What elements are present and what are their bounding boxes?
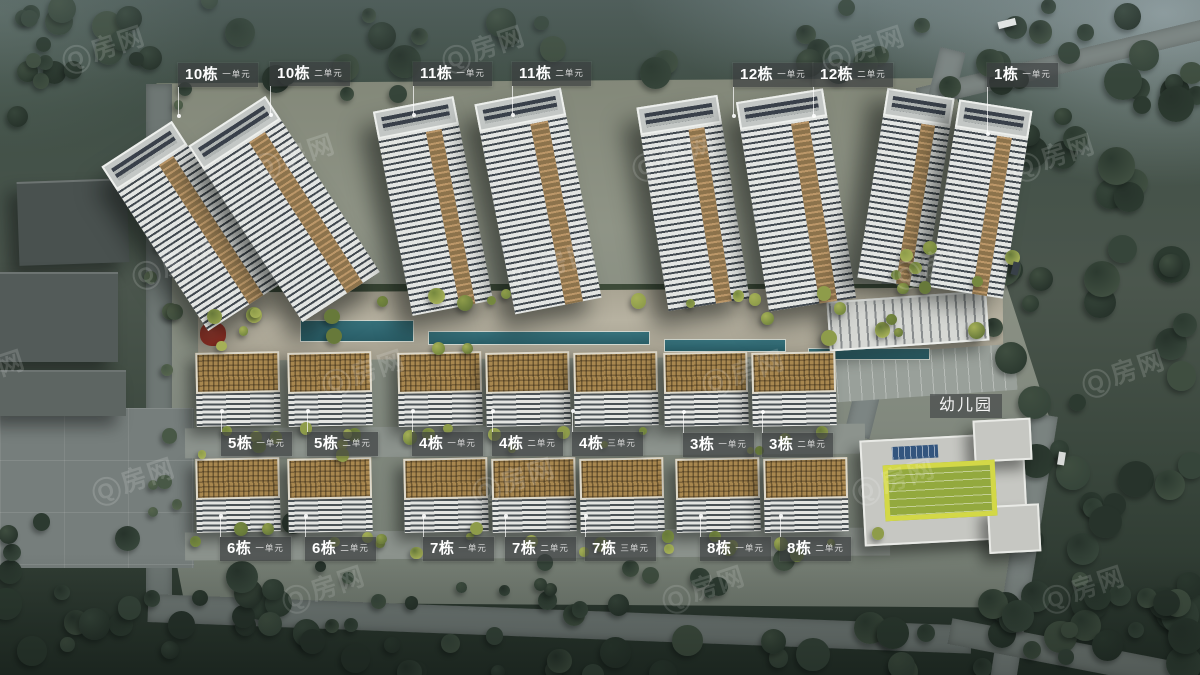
unit-label: 三单元	[607, 439, 636, 448]
tree	[1108, 235, 1136, 263]
tree	[1089, 506, 1122, 539]
tree	[499, 585, 510, 596]
tree	[161, 641, 179, 659]
tree	[111, 29, 133, 51]
building-label: 11栋一单元	[413, 62, 492, 86]
forest-trees-layer	[0, 0, 1200, 675]
midrise-facade	[664, 392, 749, 427]
tree	[1118, 461, 1154, 497]
building-number: 4栋	[579, 436, 603, 451]
building-label: 4栋二单元	[492, 432, 563, 456]
label-leader-line	[413, 86, 414, 114]
tree	[582, 664, 604, 675]
building-number: 3栋	[769, 437, 793, 452]
tree	[888, 652, 916, 675]
tree	[129, 52, 143, 66]
residential-complex-aerial-render: 10栋一单元10栋二单元11栋一单元11栋二单元12栋一单元12栋二单元1栋一单…	[0, 0, 1200, 675]
kindergarten-playground	[883, 460, 998, 522]
building-label: 12栋一单元	[733, 63, 813, 87]
label-leader-line	[412, 412, 413, 432]
label-leader-line	[492, 412, 493, 432]
building-number: 12栋	[820, 67, 853, 82]
tree	[341, 644, 370, 673]
midrise-building-block	[287, 351, 373, 427]
tree	[1022, 295, 1039, 312]
midrise-pergola-roof	[403, 457, 488, 499]
building-number: 10栋	[185, 67, 218, 82]
tree	[167, 304, 183, 320]
tree	[36, 37, 51, 52]
tree	[192, 590, 208, 606]
label-leader-line	[178, 87, 179, 115]
tree	[0, 560, 22, 584]
tree	[1069, 394, 1086, 411]
midrise-building-block	[195, 457, 281, 533]
label-leader-line	[585, 517, 586, 537]
midrise-building-block	[663, 351, 749, 427]
midrise-building-block	[751, 351, 837, 427]
label-leader-line	[423, 517, 424, 537]
midrise-pergola-roof	[195, 351, 280, 393]
tree	[1029, 20, 1052, 43]
building-label: 10栋一单元	[178, 63, 258, 87]
tower-facade-accent	[688, 127, 732, 303]
tree	[1128, 622, 1145, 639]
tree	[3, 544, 20, 561]
building-label: 7栋三单元	[585, 537, 656, 561]
unit-label: 一单元	[735, 544, 764, 553]
unit-label: 一单元	[447, 439, 476, 448]
tree	[0, 525, 18, 544]
unit-label: 一单元	[1022, 70, 1051, 79]
tree	[405, 596, 418, 609]
kindergarten-label: 幼儿园	[930, 394, 1002, 418]
tree	[1168, 618, 1200, 654]
tower-roof-solar-panels	[483, 96, 558, 124]
unit-label: 一单元	[456, 69, 485, 78]
tree	[161, 364, 173, 376]
tree	[877, 617, 909, 649]
tree	[168, 611, 196, 639]
building-number: 7栋	[512, 541, 536, 556]
label-leader-line	[270, 86, 271, 114]
tree	[642, 567, 659, 584]
label-leader-line	[572, 412, 573, 432]
label-leader-line	[305, 517, 306, 537]
unit-label: 一单元	[458, 544, 487, 553]
building-label: 1栋一单元	[987, 63, 1058, 87]
tree	[1058, 42, 1080, 64]
midrise-pergola-roof	[397, 351, 482, 393]
tree	[914, 18, 929, 33]
tree	[389, 85, 408, 104]
tower-facade-accent	[791, 121, 837, 304]
tree	[622, 560, 639, 577]
building-number: 6栋	[312, 541, 336, 556]
tower-facade-accent	[972, 136, 1012, 296]
building-label: 10栋二单元	[270, 62, 350, 86]
midrise-facade	[764, 498, 849, 533]
tree	[1109, 584, 1130, 605]
midrise-facade	[574, 392, 659, 427]
midrise-building-block	[403, 457, 489, 533]
tree	[1133, 96, 1151, 114]
midrise-pergola-roof	[195, 457, 280, 499]
label-leader-line	[683, 413, 684, 433]
tree	[315, 561, 326, 572]
unit-label: 一单元	[718, 440, 747, 449]
tree	[79, 608, 110, 639]
tree	[368, 22, 396, 50]
midrise-facade	[196, 498, 281, 533]
tree	[33, 73, 49, 89]
tree	[118, 596, 141, 619]
tree	[258, 612, 282, 636]
label-leader-line	[780, 517, 781, 537]
tree	[796, 638, 830, 672]
building-label: 8栋二单元	[780, 537, 851, 561]
tree	[162, 428, 178, 444]
building-number: 8栋	[787, 541, 811, 556]
building-number: 11栋	[519, 66, 551, 81]
tree	[1173, 313, 1197, 337]
midrise-facade	[288, 392, 373, 427]
tree	[21, 10, 38, 27]
tree	[441, 634, 460, 653]
tree	[1092, 630, 1123, 661]
tree	[1114, 182, 1144, 212]
building-number: 4栋	[499, 436, 523, 451]
tree	[60, 637, 75, 652]
tree	[226, 561, 258, 593]
tree	[1180, 62, 1200, 85]
unit-label: 二单元	[857, 70, 886, 79]
building-label: 6栋一单元	[220, 537, 291, 561]
tree	[148, 507, 158, 517]
tree	[672, 625, 703, 656]
tree	[1077, 24, 1094, 41]
label-leader-line	[221, 412, 222, 432]
midrise-building-block	[675, 457, 761, 533]
unit-label: 一单元	[777, 70, 806, 79]
building-number: 12栋	[740, 67, 773, 82]
label-leader-line	[762, 413, 763, 433]
tree	[1041, 0, 1056, 14]
building-number: 4栋	[419, 436, 443, 451]
tree	[690, 568, 709, 587]
tree	[340, 87, 354, 101]
tree	[342, 572, 354, 584]
building-label: 4栋三单元	[572, 432, 643, 456]
tree	[262, 579, 284, 601]
tree	[144, 590, 161, 607]
building-number: 7栋	[430, 541, 454, 556]
tree	[1058, 649, 1074, 665]
tree	[1153, 590, 1179, 616]
midrise-pergola-roof	[751, 351, 836, 393]
unit-label: 一单元	[256, 439, 285, 448]
building-number: 11栋	[420, 66, 452, 81]
tower-roof-solar-panels	[963, 107, 1024, 130]
building-number: 8栋	[707, 541, 731, 556]
tree	[640, 57, 672, 89]
tree	[456, 582, 467, 593]
midrise-facade	[580, 498, 665, 533]
tree	[1084, 583, 1111, 610]
tower-roof-solar-panels	[744, 96, 819, 121]
tree	[115, 526, 140, 551]
tree	[486, 8, 515, 37]
tree	[1063, 126, 1088, 151]
tree	[325, 619, 339, 633]
midrise-pergola-roof	[763, 457, 848, 499]
tree	[486, 627, 504, 645]
tree	[384, 637, 400, 653]
midrise-pergola-roof	[485, 351, 570, 393]
midrise-building-block	[763, 457, 849, 533]
label-leader-line	[733, 87, 734, 115]
tree	[300, 629, 325, 654]
unit-label: 二单元	[314, 69, 343, 78]
building-number: 6栋	[227, 541, 251, 556]
tree	[608, 594, 630, 616]
tree	[1054, 108, 1071, 125]
midrise-facade	[196, 392, 281, 427]
tree	[1067, 533, 1100, 566]
tower-roof-solar-panels	[381, 104, 450, 131]
tree	[1084, 261, 1120, 297]
tree	[540, 36, 566, 62]
tree	[838, 0, 855, 16]
building-label: 5栋一单元	[221, 432, 292, 456]
unit-label: 二单元	[342, 439, 371, 448]
tree	[64, 61, 81, 78]
tree	[0, 588, 22, 619]
midrise-building-block	[287, 457, 373, 533]
building-label: 3栋二单元	[762, 433, 833, 457]
tree	[33, 513, 51, 531]
tree	[225, 18, 254, 47]
tree	[1023, 641, 1041, 659]
building-number: 5栋	[228, 436, 252, 451]
tree	[547, 649, 571, 673]
unit-label: 二单元	[540, 544, 569, 553]
tree	[649, 660, 677, 675]
midrise-pergola-roof	[287, 457, 372, 499]
tree	[148, 480, 158, 490]
tree	[232, 605, 255, 628]
midrise-building-block	[397, 351, 483, 427]
unit-label: 二单元	[815, 544, 844, 553]
tree	[54, 585, 70, 601]
tree	[344, 618, 358, 632]
unit-label: 二单元	[797, 440, 826, 449]
building-number: 3栋	[690, 437, 714, 452]
tree	[1029, 267, 1053, 291]
building-label: 8栋一单元	[700, 537, 771, 561]
tree	[1098, 147, 1136, 185]
tree	[26, 53, 41, 68]
unit-label: 一单元	[255, 544, 284, 553]
building-number: 5栋	[314, 436, 338, 451]
tree	[1018, 386, 1051, 419]
tree	[17, 636, 47, 666]
midrise-pergola-roof	[675, 457, 760, 499]
label-leader-line	[700, 517, 701, 537]
tree	[1167, 361, 1197, 391]
tree	[1114, 3, 1141, 30]
tower-roof-solar-panels	[644, 103, 713, 127]
midrise-facade	[288, 498, 373, 533]
tree	[1158, 86, 1194, 122]
tree	[1104, 63, 1141, 100]
kindergarten-wing	[972, 418, 1032, 463]
building-label: 11栋二单元	[512, 62, 591, 86]
unit-label: 三单元	[620, 544, 649, 553]
building-label: 5栋二单元	[307, 432, 378, 456]
tree	[397, 660, 422, 675]
tree	[144, 271, 157, 284]
midrise-building-block	[195, 351, 281, 427]
tree	[572, 601, 588, 617]
unit-label: 二单元	[340, 544, 369, 553]
tree	[371, 594, 386, 609]
midrise-pergola-roof	[491, 457, 576, 499]
unit-label: 二单元	[527, 439, 556, 448]
midrise-facade	[676, 498, 761, 533]
label-leader-line	[987, 87, 988, 133]
tree	[411, 28, 428, 45]
kindergarten-solar-panel	[892, 445, 939, 460]
midrise-facade	[486, 392, 571, 427]
building-label: 3栋一单元	[683, 433, 754, 457]
midrise-building-block	[579, 457, 665, 533]
tree	[172, 499, 182, 509]
tree	[600, 637, 631, 668]
tree	[917, 624, 935, 642]
midrise-facade	[752, 392, 837, 427]
midrise-facade	[404, 498, 489, 533]
midrise-pergola-roof	[579, 457, 664, 499]
building-label: 7栋一单元	[423, 537, 494, 561]
tree	[939, 76, 961, 98]
midrise-building-block	[573, 351, 659, 427]
unit-label: 一单元	[222, 70, 251, 79]
kindergarten-building	[855, 417, 1044, 560]
tree	[491, 665, 506, 675]
building-label: 12栋二单元	[813, 63, 893, 87]
label-leader-line	[220, 517, 221, 537]
midrise-pergola-roof	[287, 351, 372, 393]
tree	[362, 8, 376, 22]
building-number: 1栋	[994, 67, 1018, 82]
building-label: 7栋二单元	[505, 537, 576, 561]
label-leader-line	[505, 517, 506, 537]
tree	[201, 0, 218, 9]
tree	[7, 106, 28, 127]
midrise-pergola-roof	[663, 351, 748, 393]
tree	[1002, 600, 1034, 632]
tower-roof-solar-panels	[891, 96, 947, 118]
tree	[534, 16, 549, 31]
building-number: 10栋	[277, 66, 310, 81]
tree	[704, 586, 716, 598]
tree	[157, 475, 171, 489]
building-number: 7栋	[592, 541, 616, 556]
label-leader-line	[307, 412, 308, 432]
label-leader-line	[512, 86, 513, 114]
tree	[116, 6, 142, 32]
tree	[995, 342, 1027, 374]
midrise-building-block	[485, 351, 571, 427]
tree	[973, 658, 992, 675]
label-leader-line	[813, 87, 814, 115]
tree	[1155, 470, 1185, 500]
tree	[1159, 254, 1182, 277]
building-label: 4栋一单元	[412, 432, 483, 456]
midrise-pergola-roof	[573, 351, 658, 393]
unit-label: 二单元	[555, 69, 584, 78]
building-label: 6栋二单元	[305, 537, 376, 561]
